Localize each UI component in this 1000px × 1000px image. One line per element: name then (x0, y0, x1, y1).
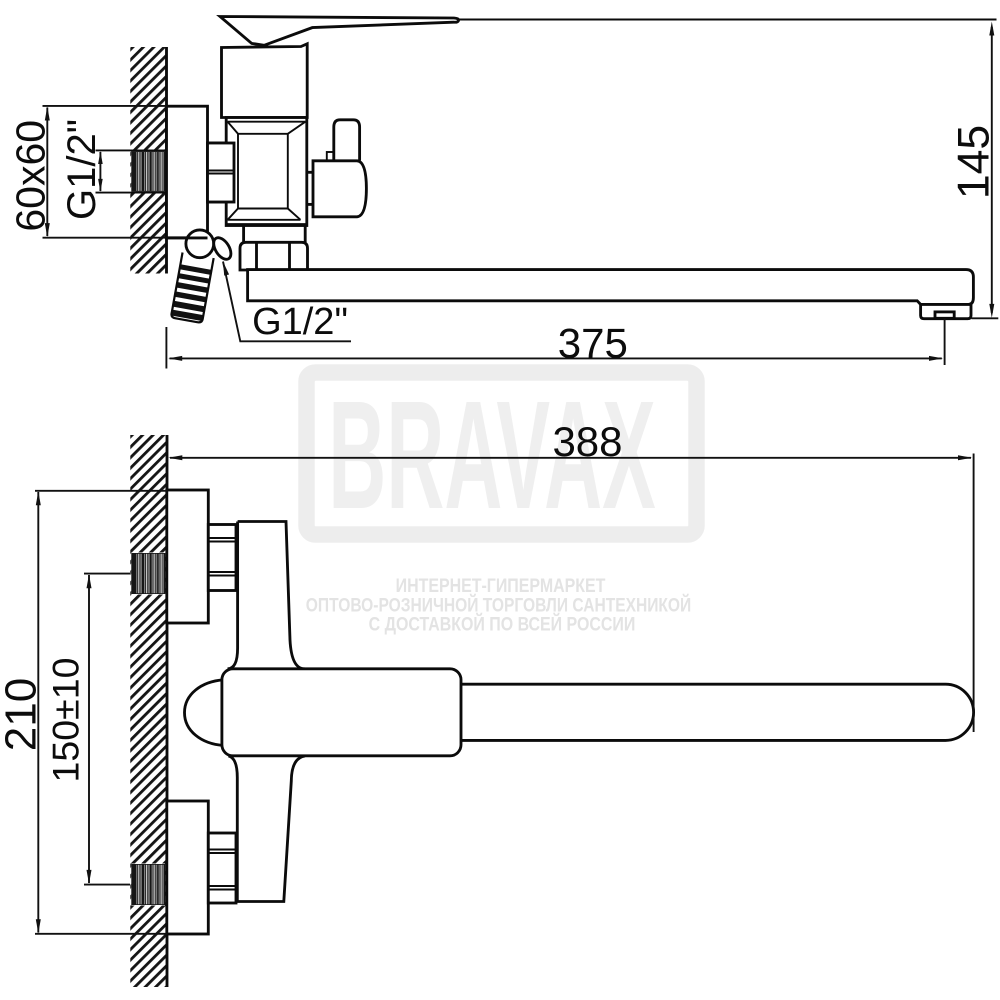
svg-text:G1/2": G1/2" (60, 119, 104, 220)
svg-text:60x60: 60x60 (7, 120, 53, 232)
svg-text:G1/2": G1/2" (252, 301, 348, 343)
svg-text:388: 388 (552, 418, 622, 465)
svg-text:210: 210 (0, 678, 45, 751)
svg-text:145: 145 (949, 125, 998, 199)
svg-text:375: 375 (558, 320, 628, 367)
svg-text:С ДОСТАВКОЙ ПО ВСЕЙ РОССИИ: С ДОСТАВКОЙ ПО ВСЕЙ РОССИИ (369, 612, 636, 635)
svg-text:150±10: 150±10 (45, 658, 87, 783)
